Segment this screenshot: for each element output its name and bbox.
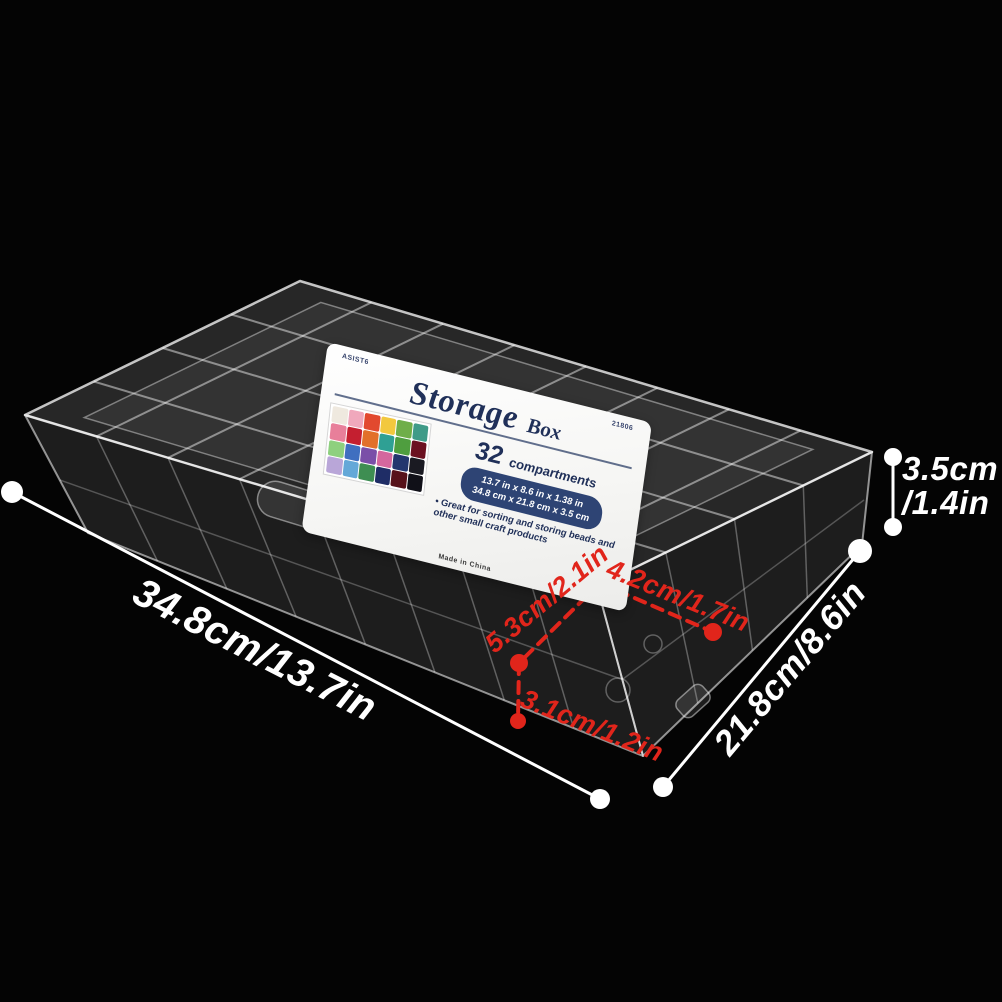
compartment-count-number: 32	[474, 436, 505, 471]
bead-swatch	[378, 433, 395, 452]
label-title-suffix: Box	[526, 413, 563, 445]
bead-swatch	[406, 473, 423, 492]
bead-swatch	[326, 456, 343, 475]
bead-swatch	[363, 413, 380, 432]
height-dimension-cm: 3.5cm	[902, 452, 998, 486]
bead-photo	[323, 402, 432, 496]
bead-swatch	[394, 436, 411, 455]
bead-swatch	[330, 423, 347, 442]
bead-swatch	[360, 446, 377, 465]
bead-swatch	[347, 409, 364, 428]
bead-swatch	[390, 470, 407, 489]
bead-swatch	[346, 426, 363, 445]
height-dimension-label: 3.5cm /1.4in	[902, 452, 998, 520]
bead-swatch	[344, 443, 361, 462]
bead-swatch	[342, 460, 359, 479]
height-dimension-in: /1.4in	[902, 486, 998, 520]
bead-swatch	[410, 440, 427, 459]
bead-swatch	[396, 419, 413, 438]
product-photo: ASIST6 21806 Storage Box 32 compartments…	[0, 0, 1002, 1002]
bead-swatch	[376, 450, 393, 469]
bead-swatch	[328, 439, 345, 458]
bead-swatch	[358, 463, 375, 482]
bead-swatch	[374, 467, 391, 486]
bead-swatch	[412, 423, 429, 442]
bead-swatch	[331, 406, 348, 425]
bead-swatch	[392, 453, 409, 472]
bead-swatch	[380, 416, 397, 435]
bead-swatch	[362, 429, 379, 448]
bead-swatch	[408, 457, 425, 476]
